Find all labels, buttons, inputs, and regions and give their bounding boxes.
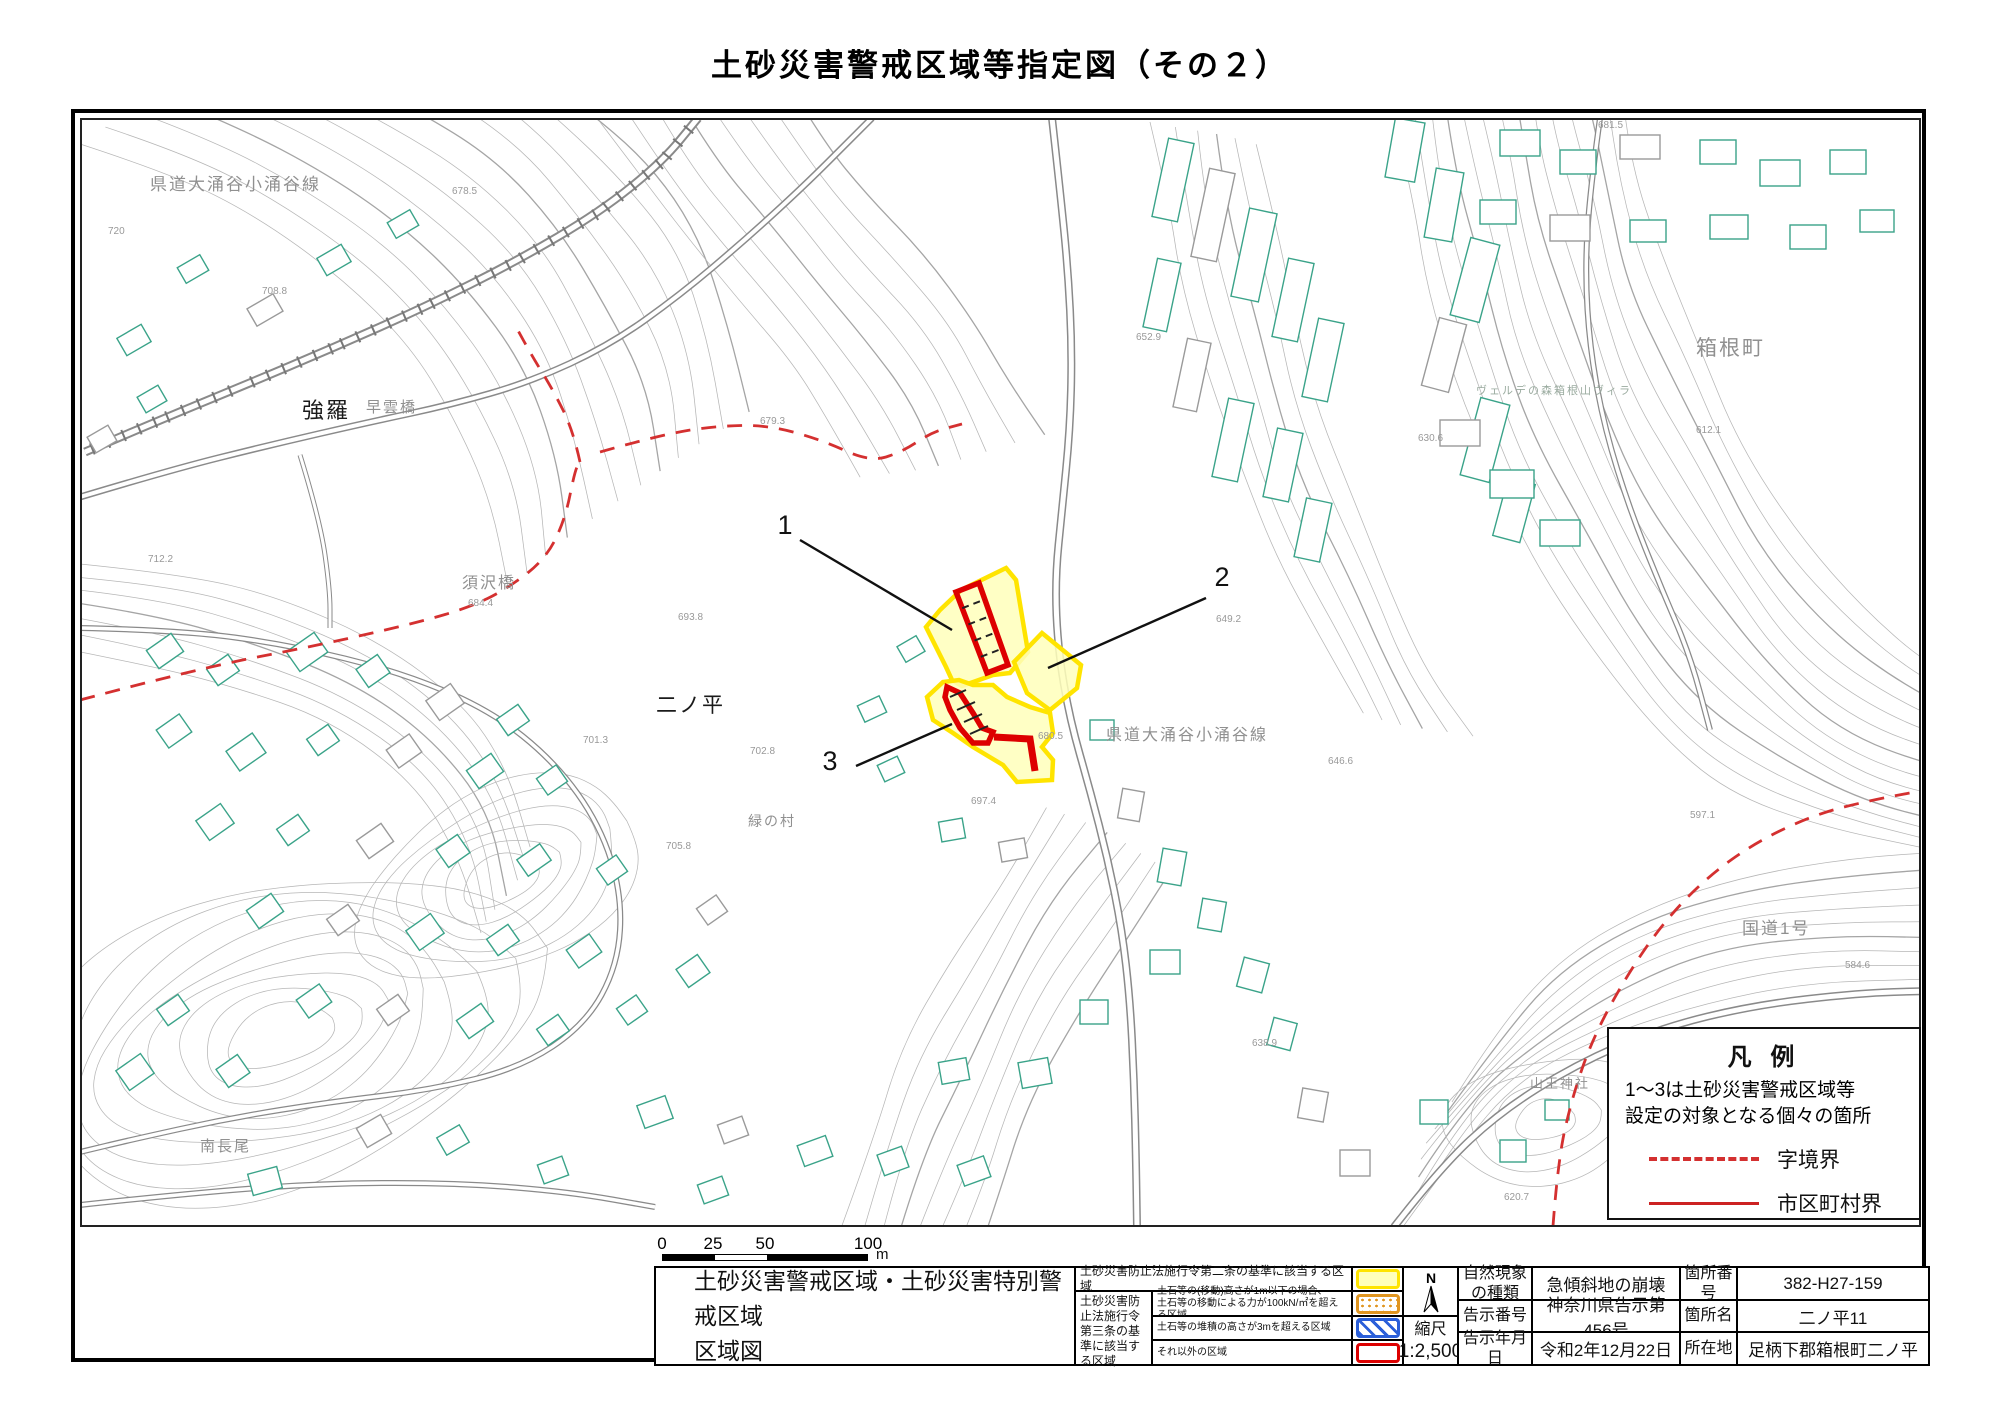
info-label-notice-number: 告示番号: [1458, 1300, 1532, 1332]
place-name-label: 国道1号: [1742, 919, 1810, 938]
building-footprint: [1231, 208, 1277, 302]
info-value-site-number: 382-H27-159: [1737, 1267, 1929, 1300]
contour-line: [679, 98, 939, 466]
building-footprint: [1545, 1100, 1569, 1120]
building-footprint: [317, 244, 351, 275]
building-footprint: [466, 753, 503, 788]
contour-line: [1541, 41, 2000, 768]
building-footprint: [356, 1114, 391, 1147]
aza-boundary-dashed-line: [600, 424, 962, 459]
blue-hatched-swatch: [1356, 1318, 1400, 1338]
info-value-notice-date: 令和2年12月22日: [1532, 1332, 1680, 1365]
bottom-info-table: 土砂災害警戒区域・土砂災害特別警戒区域 区域図 土砂災害防止法施行令第二条の基準…: [655, 1267, 1929, 1365]
contour-ring: [132, 927, 433, 1151]
building-footprint: [216, 1055, 250, 1088]
place-name-label: 強羅: [302, 398, 350, 423]
zone-number-label: 1: [777, 510, 792, 540]
road: [300, 455, 330, 628]
building-footprint: [1710, 215, 1748, 239]
building-footprint: [897, 636, 925, 663]
building-footprint: [1630, 220, 1666, 242]
building-footprint: [1191, 168, 1235, 261]
info-label-site-name: 箇所名: [1680, 1300, 1737, 1332]
building-footprint: [356, 655, 390, 688]
legend-item-label: 市区町村界: [1777, 1188, 1882, 1218]
spot-height-label: 678.5: [452, 186, 477, 197]
building-footprint: [1272, 258, 1314, 342]
contour-line: [80, 564, 530, 847]
info-value-site-name: 二ノ平11: [1737, 1300, 1929, 1332]
spot-height-label: 638.9: [1252, 1038, 1277, 1049]
spot-height-label: 646.6: [1328, 756, 1353, 767]
spot-height-label: 708.8: [262, 286, 287, 297]
building-footprint: [156, 714, 192, 748]
spot-height-label: 597.1: [1690, 810, 1715, 821]
building-footprint: [1620, 135, 1660, 159]
legend-title: 凡 例: [1609, 1037, 1919, 1072]
spot-height-label: 584.6: [1845, 960, 1870, 971]
contour-line: [785, 77, 1045, 435]
contour-line: [840, 808, 1046, 1231]
building-footprint: [1018, 1058, 1052, 1089]
building-footprint: [386, 734, 422, 768]
building-footprint: [696, 895, 727, 925]
info-label-notice-date: 告示年月日: [1458, 1332, 1532, 1365]
building-footprint: [1830, 150, 1866, 174]
legend-note-line1: 1～3は土砂災害警戒区域等: [1625, 1078, 1919, 1104]
spot-height-label: 684.4: [468, 598, 493, 609]
spot-height-label: 679.3: [760, 416, 785, 427]
place-name-label: 県道大涌谷小涌谷線: [150, 175, 321, 194]
building-footprint: [1302, 318, 1344, 402]
building-footprint: [938, 818, 965, 842]
spot-height-label: 702.8: [750, 746, 775, 757]
building-footprint: [1080, 1000, 1108, 1024]
dashed-red-line-sample: [1649, 1157, 1759, 1161]
place-name-label: 山王神社: [1530, 1076, 1590, 1091]
building-footprint: [1298, 1088, 1329, 1122]
info-label-site-number: 箇所番号: [1680, 1267, 1737, 1300]
building-footprint: [637, 1096, 673, 1129]
legend-item-label: 字境界: [1777, 1144, 1840, 1174]
building-footprint: [938, 1058, 969, 1085]
swatch-warning-area-cell: [1352, 1267, 1403, 1291]
building-footprint: [1500, 1140, 1526, 1162]
building-footprint: [1294, 498, 1332, 562]
contour-line: [280, 0, 699, 444]
zone-number-label: 2: [1214, 562, 1229, 592]
map-title-line1: 土砂災害警戒区域・土砂災害特別警戒区域: [694, 1264, 1074, 1334]
zone-leader-line: [800, 540, 952, 630]
building-footprint: [497, 704, 530, 735]
place-name-label: ヴェルデの森箱根山ヴィラ: [1476, 383, 1632, 397]
contour-ring: [193, 964, 375, 1100]
legend-box: 凡 例 1～3は土砂災害警戒区域等 設定の対象となる個々の箇所 字境界 市区町村…: [1607, 1027, 1921, 1220]
svg-text:N: N: [1425, 1270, 1435, 1286]
contour-line: [31, 642, 481, 933]
place-name-label: 早雲橋: [366, 399, 417, 416]
law-article3-row2-cell: 土石等の堆積の高さが3mを超える区域: [1152, 1316, 1352, 1340]
building-footprint: [406, 914, 444, 951]
building-footprint: [1500, 130, 1540, 156]
building-footprint: [1700, 140, 1736, 164]
building-footprint: [137, 385, 167, 413]
place-name-label: 二ノ平: [656, 694, 725, 717]
north-arrow-icon: N: [1416, 1270, 1446, 1314]
building-footprint: [797, 1136, 833, 1167]
spot-height-label: 681.5: [1598, 120, 1623, 131]
building-footprint: [426, 684, 464, 721]
contour-line: [726, 84, 986, 451]
building-footprint: [1198, 898, 1227, 932]
law-article3-label-cell: 土砂災害防止法施行令第三条の基準に該当する区域: [1075, 1291, 1152, 1365]
scale-bar: 0 25 50 100 m: [640, 1234, 920, 1266]
building-footprint: [1760, 160, 1800, 186]
spot-height-label: 693.8: [678, 612, 703, 623]
zone-leader-line: [856, 724, 952, 766]
building-footprint: [248, 1166, 283, 1195]
contour-line: [147, 90, 568, 538]
law-article3-row3-cell: それ以外の区域: [1152, 1340, 1352, 1365]
scale-unit: m: [876, 1246, 889, 1263]
building-footprint: [1540, 520, 1580, 546]
contour-line: [701, 90, 961, 459]
building-footprint: [517, 844, 551, 876]
building-footprint: [1420, 1100, 1448, 1124]
solid-red-line-sample: [1649, 1202, 1759, 1205]
spot-height-label: 620.7: [1504, 1192, 1529, 1203]
building-footprint: [877, 1146, 909, 1176]
contour-line: [186, 56, 618, 501]
contour-line: [45, 612, 495, 909]
building-footprint: [1424, 168, 1464, 242]
building-footprint: [717, 1116, 748, 1144]
spot-height-label: 680.5: [1038, 731, 1063, 742]
spot-height-label: 701.3: [583, 735, 608, 746]
contour-line: [755, 80, 1015, 443]
map-sheet: 土砂災害警戒区域等指定図（その２） 123720712.2708.8678.56…: [0, 0, 2000, 1414]
orange-dotted-swatch: [1356, 1294, 1400, 1314]
spot-height-label: 652.9: [1136, 332, 1161, 343]
spot-height-label: 720: [108, 226, 125, 237]
swatch-special-area-cell: [1352, 1340, 1403, 1365]
building-footprint: [857, 696, 886, 722]
map-title-cell: 土砂災害警戒区域・土砂災害特別警戒区域 区域図: [655, 1267, 1075, 1365]
info-label-phenomenon: 自然現象の種類: [1458, 1267, 1532, 1300]
building-footprint: [286, 632, 328, 671]
building-footprint: [117, 324, 151, 355]
building-footprint: [247, 294, 283, 326]
building-footprint: [377, 994, 410, 1025]
scale-cell: 縮尺 1:2,500: [1403, 1316, 1458, 1365]
spot-height-label: 712.2: [148, 554, 173, 565]
building-footprint: [1385, 118, 1425, 182]
legend-item-aza-boundary: 字境界: [1649, 1144, 1919, 1174]
contour-line: [318, 0, 749, 412]
contour-line: [656, 107, 916, 471]
building-footprint: [566, 934, 602, 968]
place-name-label: 南長尾: [200, 1138, 251, 1155]
building-footprint: [616, 995, 647, 1025]
north-cell: N: [1403, 1267, 1458, 1316]
contour-ring: [348, 762, 644, 1008]
contour-line: [1456, 78, 1988, 816]
building-footprint: [536, 765, 567, 795]
swatch-orange-cell: [1352, 1291, 1403, 1316]
building-footprint: [1150, 950, 1180, 974]
info-value-location: 足柄下郡箱根町二ノ平: [1737, 1332, 1929, 1365]
legend-note-line2: 設定の対象となる個々の箇所: [1625, 1104, 1919, 1130]
building-footprint: [1173, 338, 1211, 411]
building-footprint: [1340, 1150, 1370, 1176]
building-footprint: [196, 804, 234, 841]
law3-row1-line1: 土石等の(移動)高さが1m以下の場合、: [1157, 1286, 1347, 1298]
building-footprint: [676, 955, 710, 988]
spot-height-label: 612.1: [1696, 425, 1721, 436]
contour-line: [1471, 69, 2000, 804]
info-value-notice-number: 神奈川県告示第456号: [1532, 1300, 1680, 1332]
spot-height-label: 705.8: [666, 841, 691, 852]
building-footprint: [1237, 957, 1270, 993]
contour-line: [909, 843, 1126, 1255]
building-footprint: [226, 733, 266, 771]
building-footprint: [1143, 258, 1181, 331]
building-footprint: [1550, 215, 1590, 241]
building-footprint: [1490, 470, 1534, 498]
building-footprint: [1480, 200, 1516, 224]
building-footprint: [177, 255, 209, 284]
law-article3-row1-cell: 土石等の(移動)高さが1m以下の場合、 土石等の移動による力が100kN/㎡を超…: [1152, 1291, 1352, 1316]
spot-height-label: 630.6: [1418, 433, 1443, 444]
building-footprint: [537, 1156, 568, 1184]
building-footprint: [1560, 150, 1596, 174]
building-footprint: [998, 838, 1027, 862]
contour-line: [211, 42, 641, 485]
building-footprint: [1118, 788, 1145, 821]
contour-line: [1605, 0, 2000, 735]
scale-bar-graphic: [662, 1254, 868, 1261]
warning-area-swatch: [1356, 1269, 1400, 1289]
building-footprint: [387, 210, 419, 239]
building-footprint: [1152, 138, 1194, 222]
spot-height-label: 649.2: [1216, 614, 1241, 625]
building-footprint: [1860, 210, 1894, 232]
scale-tick-25: 25: [704, 1234, 723, 1254]
building-footprint: [307, 724, 340, 755]
special-area-swatch: [1356, 1343, 1400, 1363]
spot-height-label: 697.4: [971, 796, 996, 807]
legend-item-municipal-boundary: 市区町村界: [1649, 1188, 1919, 1218]
building-footprint: [877, 756, 905, 782]
map-title-line2: 区域図: [694, 1334, 1074, 1369]
road: [80, 628, 620, 1152]
building-footprint: [437, 1125, 470, 1155]
building-footprint: [1212, 398, 1254, 482]
zone-number-label: 3: [822, 746, 837, 776]
place-name-label: 緑の村: [748, 813, 796, 829]
scale-label: 縮尺: [1414, 1319, 1446, 1341]
info-label-location: 所在地: [1680, 1332, 1737, 1365]
scale-value: 1:2,500: [1399, 1341, 1462, 1363]
building-footprint: [697, 1176, 728, 1204]
building-footprint: [1790, 225, 1826, 249]
contour-line: [926, 853, 1141, 1263]
building-footprint: [1157, 848, 1187, 886]
building-footprint: [356, 823, 393, 858]
building-footprint: [1440, 420, 1480, 446]
building-footprint: [146, 633, 183, 668]
scale-tick-0: 0: [657, 1234, 666, 1254]
zone-leader-line: [1048, 598, 1206, 668]
contour-line: [969, 869, 1172, 1284]
contour-line: [1527, 49, 2000, 775]
place-name-label: 須沢橋: [462, 574, 516, 592]
place-name-label: 箱根町: [1696, 337, 1765, 360]
building-footprint: [277, 814, 310, 845]
building-footprint: [1421, 318, 1466, 393]
building-footprint: [246, 893, 283, 928]
building-footprint: [596, 855, 627, 885]
scale-tick-50: 50: [756, 1234, 775, 1254]
swatch-blue-cell: [1352, 1316, 1403, 1340]
place-name-label: 県道大涌谷小涌谷線: [1106, 726, 1268, 744]
